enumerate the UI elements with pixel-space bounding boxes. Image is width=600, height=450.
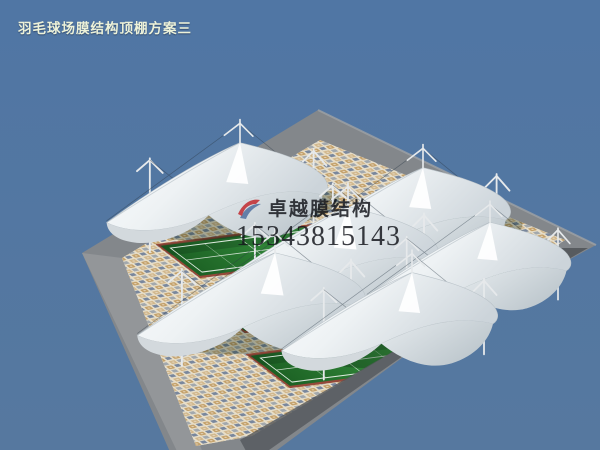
brand-logo-icon — [236, 197, 262, 221]
render-viewport: 羽毛球场膜结构顶棚方案三 卓越膜结构 15343815143 — [0, 0, 600, 450]
render-title: 羽毛球场膜结构顶棚方案三 — [18, 17, 192, 37]
watermark-brand-text: 卓越膜结构 — [268, 200, 373, 219]
watermark: 卓越膜结构 15343815143 — [236, 197, 401, 251]
watermark-phone-number: 15343815143 — [236, 223, 401, 251]
